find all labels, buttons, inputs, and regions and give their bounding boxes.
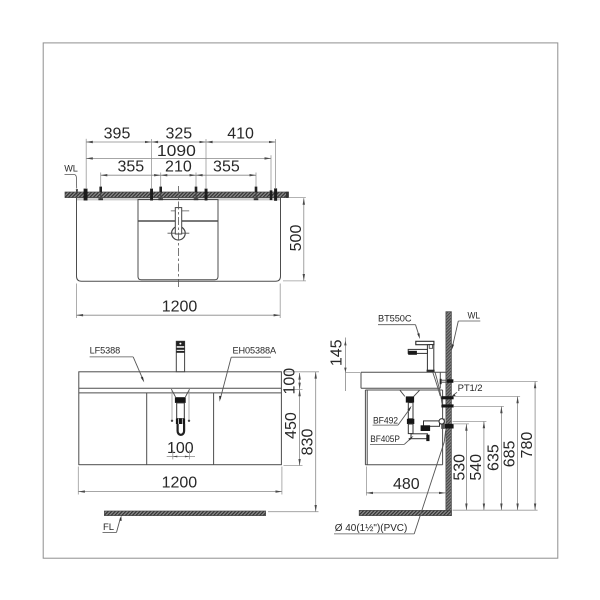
svg-text:635: 635	[485, 444, 502, 471]
svg-text:540: 540	[468, 454, 485, 481]
svg-text:325: 325	[165, 126, 192, 143]
svg-text:WL: WL	[468, 311, 481, 322]
svg-text:1200: 1200	[162, 298, 198, 315]
svg-text:530: 530	[452, 454, 469, 481]
svg-text:LF5388: LF5388	[90, 345, 121, 356]
svg-text:210: 210	[165, 159, 192, 176]
svg-text:410: 410	[227, 126, 254, 143]
svg-text:BF405P: BF405P	[370, 434, 400, 445]
svg-text:1090: 1090	[157, 143, 196, 160]
svg-text:780: 780	[519, 432, 536, 459]
svg-text:145: 145	[328, 339, 345, 366]
svg-text:BT550C: BT550C	[378, 313, 412, 324]
svg-text:355: 355	[213, 159, 240, 176]
svg-text:480: 480	[393, 476, 420, 493]
svg-text:450: 450	[283, 412, 300, 439]
svg-text:EH05388A: EH05388A	[233, 345, 277, 356]
svg-text:FL: FL	[103, 522, 114, 533]
svg-text:1200: 1200	[162, 475, 198, 492]
svg-text:830: 830	[299, 429, 316, 456]
svg-text:WL: WL	[64, 163, 78, 174]
svg-text:100: 100	[282, 368, 299, 395]
svg-text:685: 685	[502, 440, 519, 467]
svg-text:Ø 40(1½")(PVC): Ø 40(1½")(PVC)	[335, 522, 408, 534]
svg-text:395: 395	[104, 126, 131, 143]
svg-text:PT1/2: PT1/2	[458, 383, 483, 394]
svg-text:355: 355	[117, 159, 144, 176]
svg-text:500: 500	[288, 225, 305, 252]
